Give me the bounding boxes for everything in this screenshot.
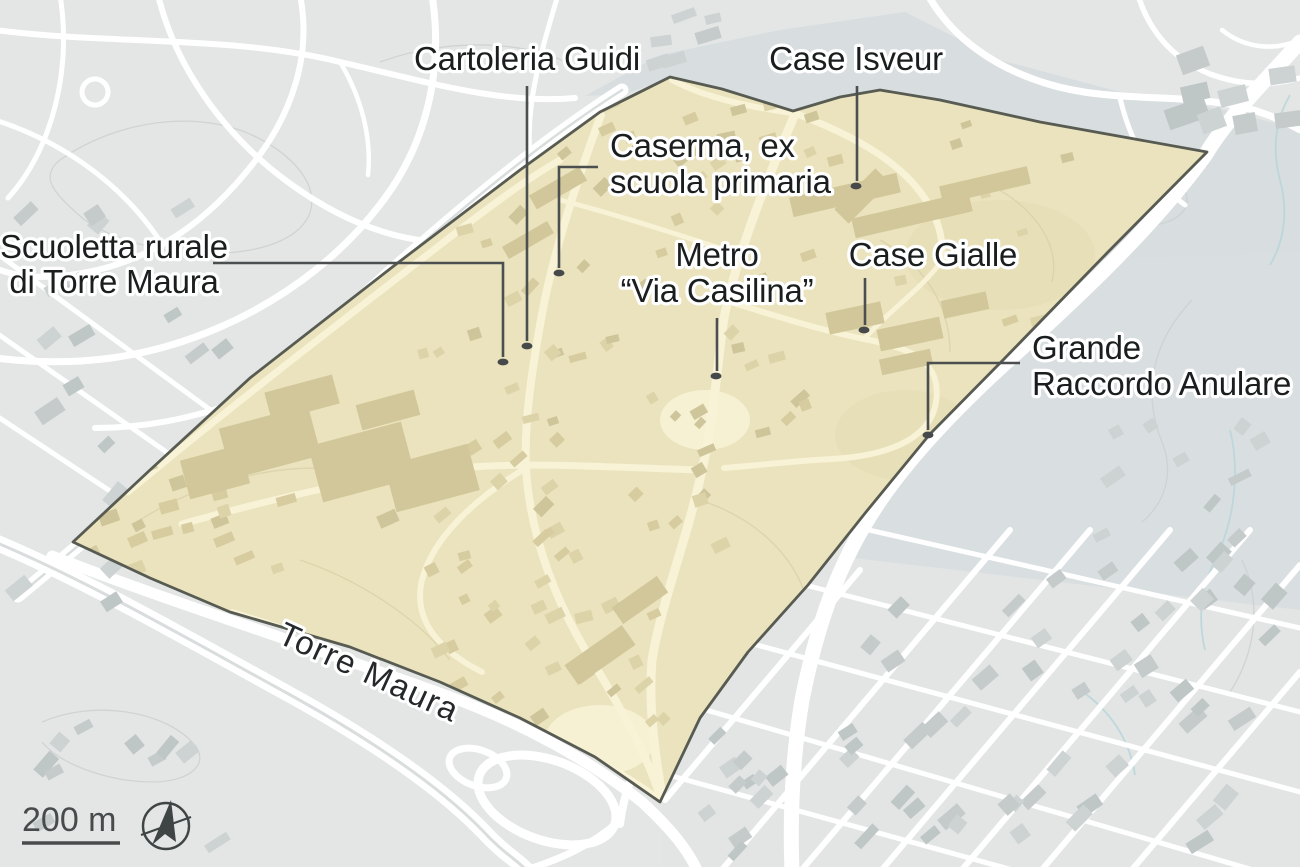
leader-dot-grande-raccordo-anulare [923, 432, 934, 439]
leader-dot-case-gialle [859, 327, 870, 334]
map-canvas: Torre Maura Scuoletta ruraledi Torre Mau… [0, 0, 1300, 867]
leader-dot-cartoleria-guidi [522, 343, 533, 350]
map-label-cartoleria-guidi: Cartoleria Guidi [414, 40, 640, 77]
leader-dot-scuoletta-rurale [498, 359, 509, 366]
map-label-scuoletta-rurale: Scuoletta ruraledi Torre Maura [0, 228, 228, 300]
scale-bar: 200 m [22, 801, 120, 843]
leader-dot-case-isveur [851, 183, 862, 190]
map-label-case-gialle: Case Gialle [849, 236, 1017, 273]
scale-label: 200 m [22, 801, 117, 839]
map-label-case-isveur: Case Isveur [769, 40, 943, 77]
building [1232, 112, 1258, 135]
leader-dot-caserma-ex-scuola-primaria [554, 270, 565, 277]
leader-dot-metro-via-casilina [711, 373, 722, 380]
